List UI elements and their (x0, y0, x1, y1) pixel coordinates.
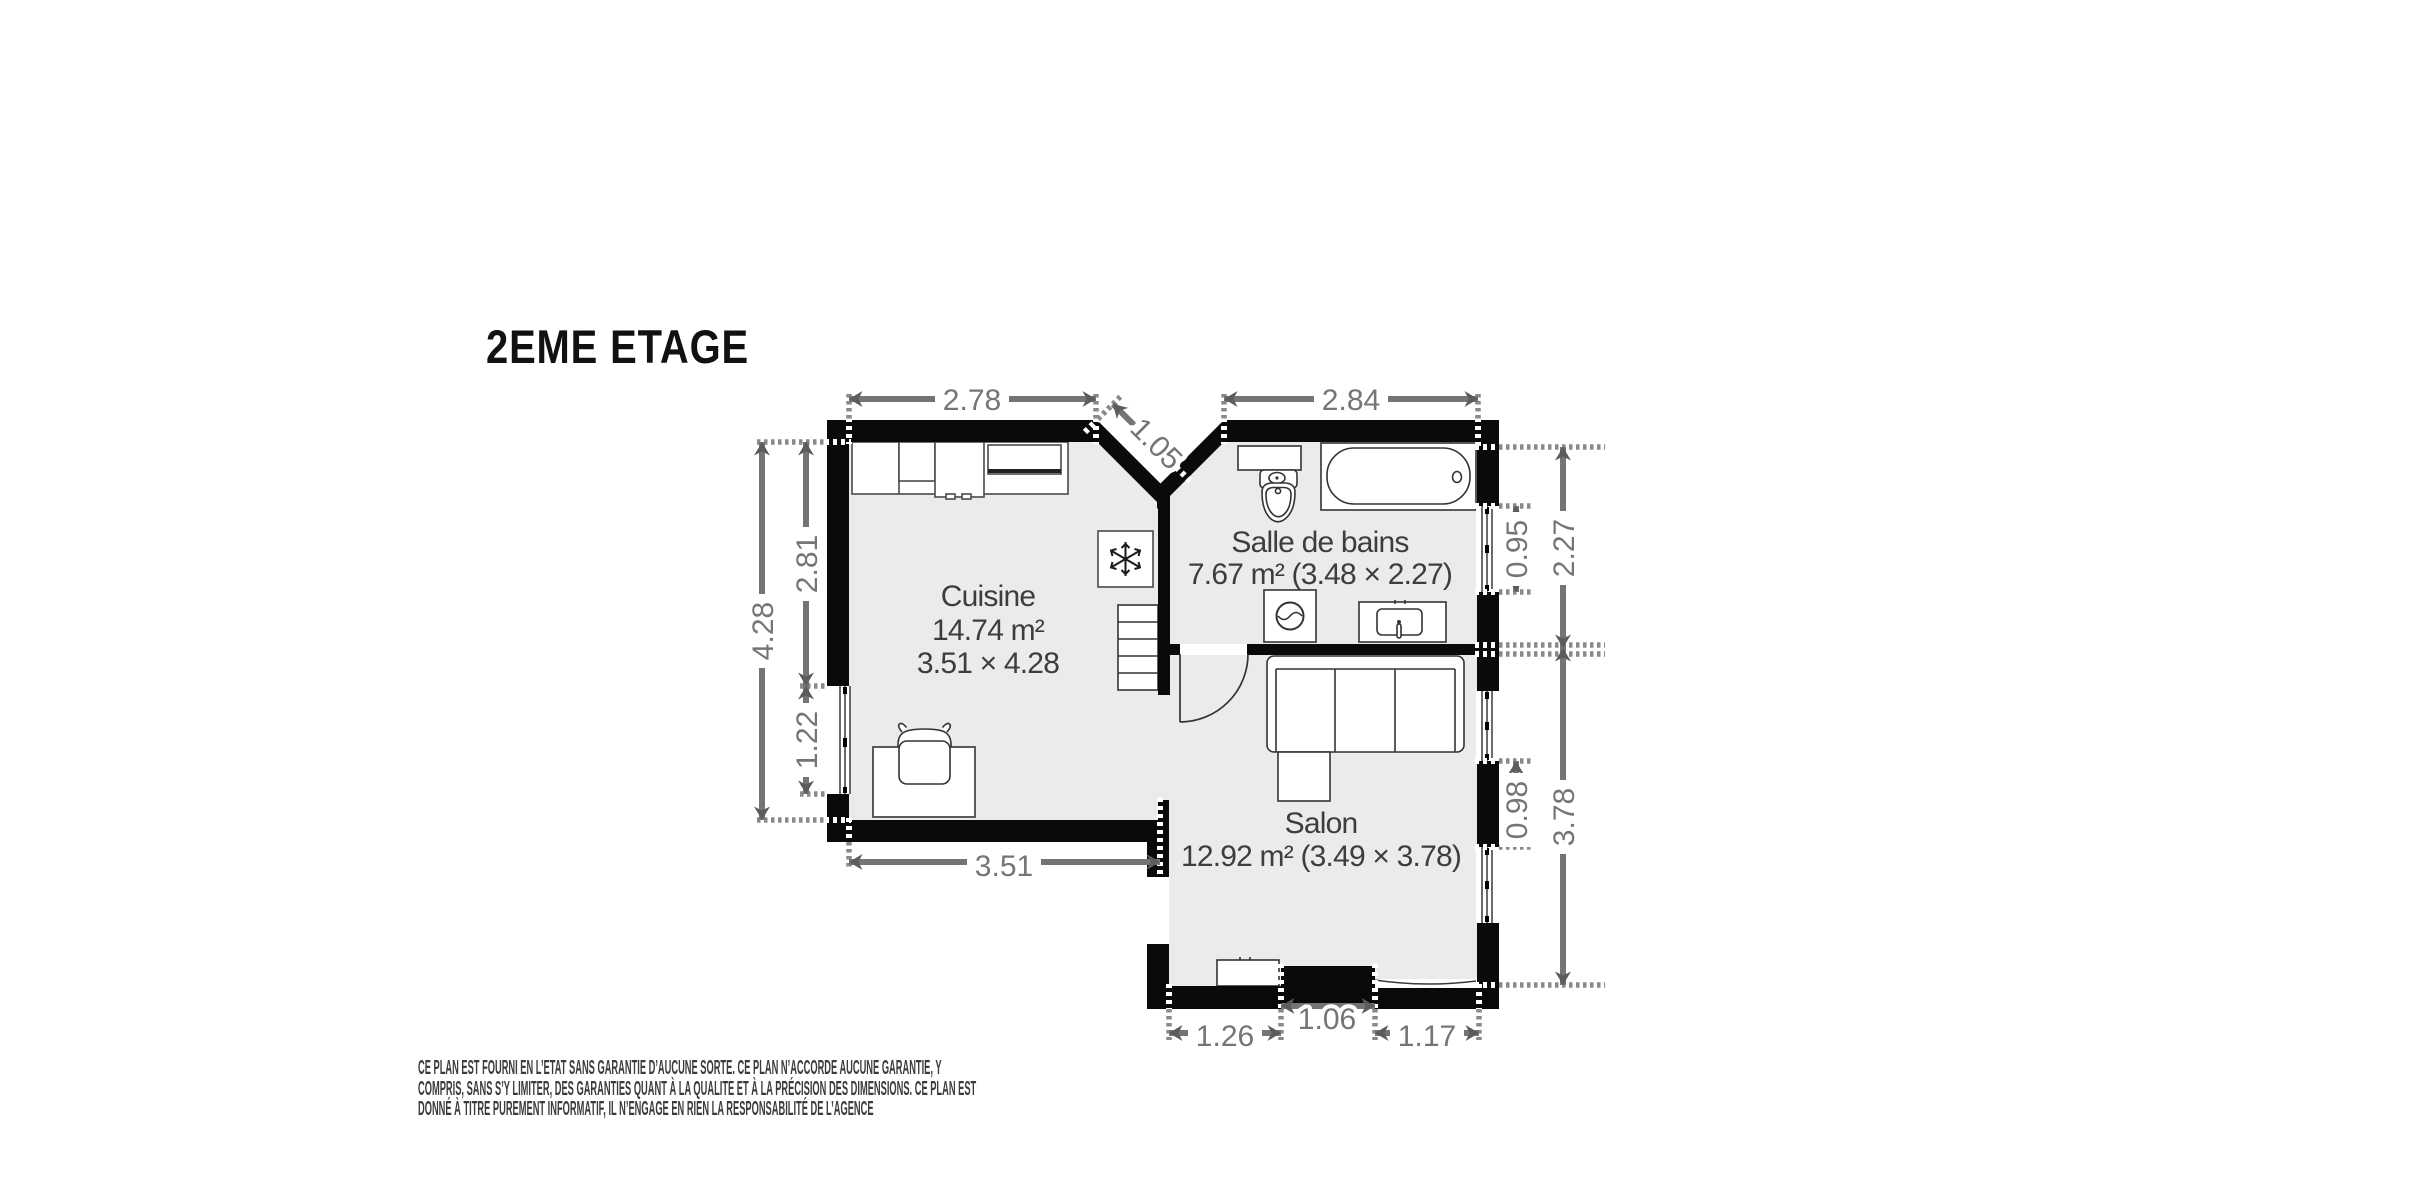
svg-text:2.78: 2.78 (943, 384, 1001, 417)
svg-text:0.98: 0.98 (1501, 781, 1534, 839)
svg-text:4.28: 4.28 (747, 602, 780, 660)
svg-text:0.95: 0.95 (1501, 520, 1534, 578)
svg-text:2.81: 2.81 (791, 535, 824, 593)
svg-text:1.22: 1.22 (791, 711, 824, 769)
svg-text:3.51: 3.51 (975, 850, 1033, 883)
svg-text:Salle de bains: Salle de bains (1231, 526, 1408, 559)
svg-text:1.06: 1.06 (1298, 1003, 1356, 1036)
svg-text:7.67 m² (3.48 × 2.27): 7.67 m² (3.48 × 2.27) (1188, 558, 1452, 591)
svg-text:Cuisine: Cuisine (941, 580, 1036, 613)
svg-text:2.27: 2.27 (1548, 519, 1581, 577)
svg-text:3.78: 3.78 (1548, 788, 1581, 846)
svg-text:12.92 m² (3.49 × 3.78): 12.92 m² (3.49 × 3.78) (1181, 840, 1461, 873)
svg-text:14.74 m²: 14.74 m² (932, 614, 1045, 647)
svg-text:1.17: 1.17 (1398, 1020, 1456, 1053)
svg-text:1.26: 1.26 (1196, 1020, 1254, 1053)
svg-text:Salon: Salon (1285, 807, 1358, 840)
svg-text:3.51 × 4.28: 3.51 × 4.28 (917, 647, 1059, 680)
svg-text:2.84: 2.84 (1322, 384, 1380, 417)
svg-text:2EME ETAGE: 2EME ETAGE (486, 322, 749, 374)
